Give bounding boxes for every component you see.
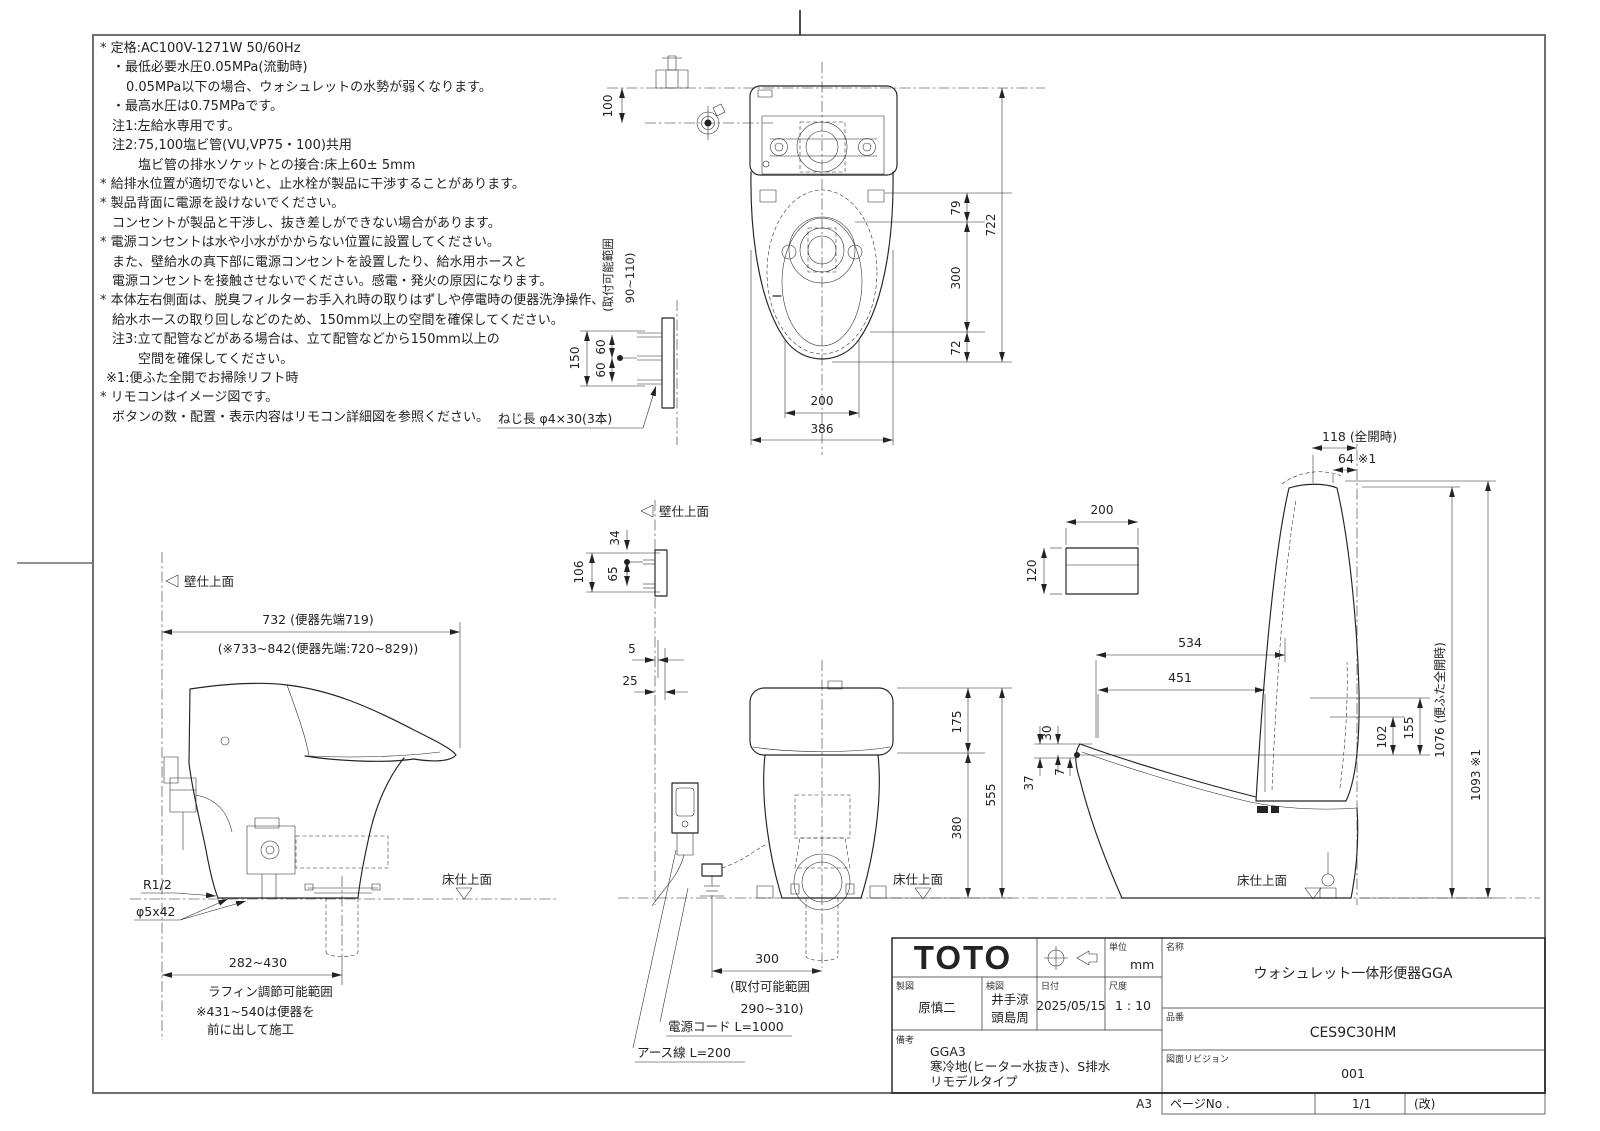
dim-155: 155 (1402, 717, 1416, 740)
open-lid (1256, 472, 1359, 801)
note-line: * 製品背面に電源を設けないでください。 (100, 195, 344, 211)
note-line: 塩ビ管の排水ソケットとの接合:床上60± 5mm (138, 157, 415, 173)
dim-722: 722 (984, 214, 998, 237)
dim-30: 30 (1040, 725, 1054, 740)
unit-label: 単位 (1109, 941, 1127, 953)
rough-in-note-1: ラフィン調節可能範囲 (208, 984, 333, 999)
dim-60-top: 60 (594, 339, 608, 354)
drawn-label: 製図 (896, 980, 914, 992)
dim-175: 175 (950, 711, 964, 734)
sheet-size-label: A3 (1136, 1097, 1152, 1111)
part-label: 品番 (1166, 1011, 1184, 1023)
dim-7: 7 (1053, 768, 1067, 776)
stop-valve-symbol (697, 104, 725, 140)
note-line: * 給排水位置が適切でないと、止水栓が製品に干渉することがあります。 (100, 176, 525, 192)
name-label: 名称 (1166, 941, 1184, 953)
page-no-value: 1/1 (1352, 1097, 1371, 1111)
earth-label: アース線 L=200 (637, 1045, 731, 1060)
revision-value: 001 (1341, 1066, 1365, 1081)
dim-34: 34 (608, 530, 622, 545)
mounting-screws (637, 333, 662, 384)
power-outlet (652, 783, 698, 906)
part-value: CES9C30HM (1310, 1025, 1397, 1041)
wall-plate-side (624, 550, 667, 596)
tank-plan (750, 86, 897, 175)
dim-118: 118 (全開時) (1322, 429, 1397, 444)
dim-386: 386 (811, 422, 834, 436)
top-view-dimensions: 100 (取付可能範囲 90~110) 79 300 72 722 200 38… (601, 88, 1012, 445)
checked-value-1: 井手涼 (991, 992, 1029, 1007)
note-line: * 定格:AC100V-1271W 50/60Hz (100, 40, 301, 56)
note-line: 0.05MPa以下の場合、ウォシュレットの水勢が弱くなります。 (126, 80, 492, 95)
toilet-profile (189, 683, 456, 898)
dim-79: 79 (949, 200, 963, 215)
rough-in-note-2: ※431~540は便器を (196, 1004, 315, 1019)
water-supply-fixture (656, 56, 688, 88)
side-view-left: 壁仕上面 床仕上面 732 (便器先端719) (※733~842(便器先端:7… (130, 552, 558, 1040)
note-line: 注2:75,100塩ビ管(VU,VP75・100)共用 (112, 138, 352, 153)
revision-label: 図面リビジョン (1166, 1054, 1229, 1065)
dim-555: 555 (984, 784, 998, 807)
unit-value: mm (1130, 957, 1154, 972)
dim-37: 37 (1022, 775, 1036, 790)
page-no-label: ページNo . (1170, 1097, 1230, 1111)
projection-symbol-icon (1044, 946, 1097, 970)
remarks-label: 備考 (896, 1034, 914, 1046)
note-line: ・最低必要水圧0.05MPa(流動時) (112, 60, 308, 75)
rough-in-note-3: 前に出して施工 (207, 1022, 294, 1037)
outlet-range-1: (取付可能範囲 (730, 979, 810, 994)
notes-block: * 定格:AC100V-1271W 50/60Hz ・最低必要水圧0.05MPa… (100, 40, 604, 425)
dim-106: 106 (572, 561, 586, 584)
dim-100: 100 (601, 95, 615, 118)
dim-72: 72 (949, 340, 963, 355)
date-label: 日付 (1041, 981, 1059, 992)
side-view-right: 200 120 118 (1022, 429, 1496, 905)
plumbing-details (164, 757, 388, 962)
checked-label: 検図 (986, 980, 1004, 992)
dim-1093: 1093 ※1 (1469, 749, 1483, 801)
note-line: * リモコンはイメージ図です。 (100, 390, 278, 405)
scale-value: 1 : 10 (1115, 998, 1151, 1013)
wall-label: 壁仕上面 (184, 574, 234, 589)
note-line: * 電源コンセントは水や小水がかからない位置に設置してください。 (100, 234, 500, 250)
dim-534: 534 (1178, 635, 1202, 650)
note-line: コンセントが製品と干渉し、抜き差しができない場合があります。 (112, 215, 501, 231)
dim-102: 102 (1375, 726, 1389, 749)
wall-marker-icon (166, 575, 178, 587)
drawn-value: 原慎二 (918, 1000, 956, 1015)
dim-282-430: 282~430 (229, 955, 287, 970)
screw-length-note: ねじ長 φ4×30(3本) (498, 411, 612, 426)
wall-label: 壁仕上面 (659, 504, 709, 519)
floor-label: 床仕上面 (1237, 873, 1287, 888)
note-line: ※1:便ふた全開でお掃除リフト時 (106, 370, 299, 386)
wall-marker-icon (641, 505, 653, 517)
outlet-range-2: 290~310) (740, 1001, 803, 1016)
dim-380: 380 (950, 817, 964, 840)
remarks-line-2: 寒冷地(ヒーター水抜き)、S排水 (930, 1059, 1111, 1074)
scale-label: 尺度 (1109, 980, 1127, 992)
dim-25: 25 (622, 674, 637, 688)
remote-dim-200: 200 (1091, 503, 1114, 517)
dim-1076: 1076 (便ふた全開時) (1432, 642, 1447, 758)
note-line: 空間を確保してください。 (138, 351, 293, 367)
drawing-sheet: * 定格:AC100V-1271W 50/60Hz ・最低必要水圧0.05MPa… (0, 0, 1600, 1131)
dim-300: 300 (949, 267, 963, 290)
toto-logo: TOTO (914, 939, 1012, 976)
cord-leader (660, 888, 688, 1022)
drawing-canvas: * 定格:AC100V-1271W 50/60Hz ・最低必要水圧0.05MPa… (0, 0, 1600, 1131)
remarks-line-3: リモデルタイプ (930, 1074, 1018, 1089)
bowl-front (757, 660, 886, 968)
dim-150: 150 (568, 347, 582, 370)
floor-marker-icon (915, 888, 931, 899)
note-line: 給水ホースの取り回しなどのため、150mm以上の空間を確保してください。 (112, 312, 564, 328)
name-value: ウォシュレット一体形便器GGA (1254, 966, 1453, 982)
checked-value-2: 頭島周 (991, 1010, 1029, 1025)
dim-64: 64 ※1 (1338, 451, 1376, 466)
mount-range-note-1: (取付可能範囲 (601, 238, 615, 312)
note-line: ・最高水圧は0.75MPaです。 (112, 98, 283, 114)
note-line: 電源コンセントを接触させないでください。感電・発火の原因になります。 (112, 273, 552, 289)
floor-marker-icon (1305, 888, 1321, 899)
note-line: * 本体左右側面は、脱臭フィルターお手入れ時の取りはずしや停電時の便器洗浄操作、 (100, 292, 604, 308)
dim-60-bottom: 60 (594, 362, 608, 377)
title-block: TOTO 単位 mm 製図 原慎二 検図 井手涼 頭島周 日付 2025/05/… (892, 938, 1545, 1114)
anchor-screw-label: φ5x42 (136, 904, 176, 919)
dim-300: 300 (755, 951, 779, 966)
dim-65: 65 (606, 566, 620, 581)
date-value: 2025/05/15 (1036, 999, 1105, 1013)
cord-label: 電源コード L=1000 (668, 1019, 784, 1034)
thread-size-label: R1/2 (143, 877, 172, 892)
toilet-profile-right (1076, 744, 1358, 898)
note-line: 注1:左給水専用です。 (112, 119, 240, 134)
remarks-line-1: GGA3 (930, 1044, 966, 1059)
dim-451: 451 (1168, 670, 1192, 685)
tank-front (750, 681, 893, 755)
stop-valve-front (700, 845, 765, 896)
floor-label: 床仕上面 (442, 872, 492, 887)
dim-732-alt: (※733~842(便器先端:720~829)) (218, 641, 419, 656)
mount-range-note-2: 90~110) (623, 253, 637, 304)
note-line: また、壁給水の真下部に電源コンセントを設置したり、給水用ホースと (112, 254, 527, 270)
revision-mark-label: (改) (1414, 1097, 1435, 1111)
note-line: 注3:立て配管などがある場合は、立て配管などから150mm以上の (112, 332, 500, 347)
dim-732: 732 (便器先端719) (262, 612, 373, 627)
dim-5: 5 (628, 642, 636, 656)
top-view: 100 (取付可能範囲 90~110) 79 300 72 722 200 38… (601, 56, 1045, 455)
dim-200: 200 (811, 394, 834, 408)
note-line: ボタンの数・配置・表示内容はリモコン詳細図を参照ください。 (112, 409, 489, 425)
floor-marker-icon (456, 888, 472, 899)
floor-label: 床仕上面 (893, 872, 943, 887)
remote-control-detail: 200 120 (1025, 503, 1138, 594)
remote-dim-120: 120 (1025, 560, 1039, 583)
